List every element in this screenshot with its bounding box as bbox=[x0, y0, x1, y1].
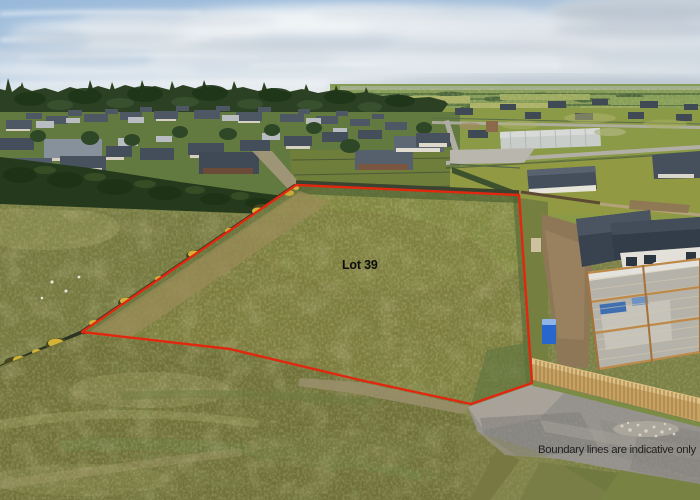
svg-text:Lot 39: Lot 39 bbox=[342, 258, 378, 272]
svg-text:Boundary lines are indicative: Boundary lines are indicative only bbox=[538, 444, 696, 456]
